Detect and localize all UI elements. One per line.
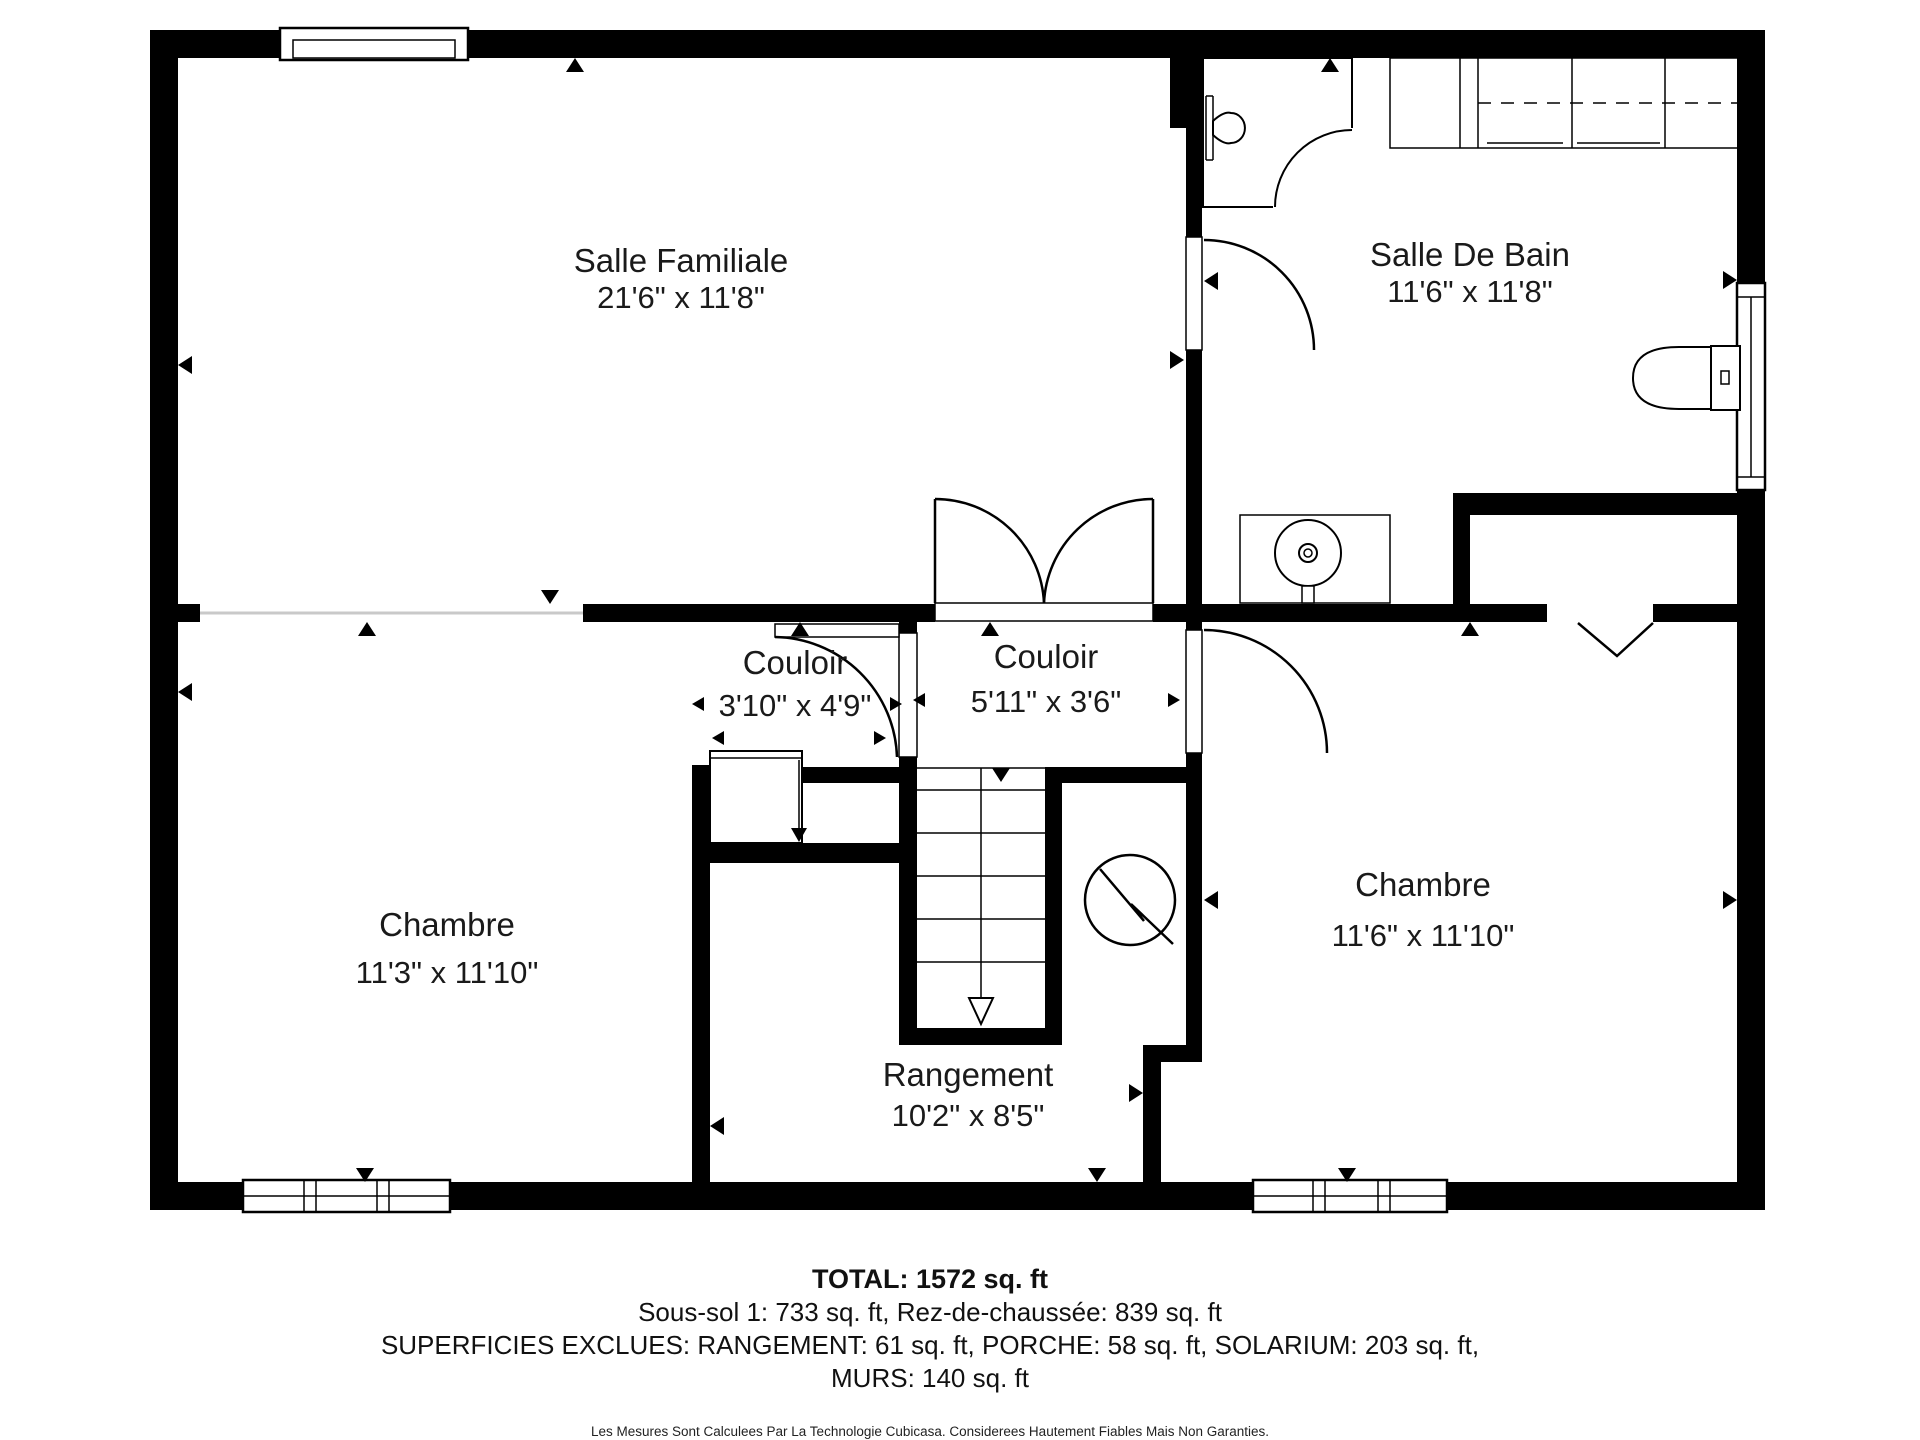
water-heater-icon	[1085, 855, 1175, 945]
opening-marker-icon	[178, 356, 192, 374]
wall	[1737, 30, 1765, 283]
utility-sink-icon	[1240, 515, 1390, 603]
wall	[150, 1182, 243, 1210]
total-area-text: TOTAL: 1572 sq. ft	[0, 1263, 1890, 1296]
opening-marker-icon	[1723, 891, 1737, 909]
excluded-areas-text: SUPERFICIES EXCLUES: RANGEMENT: 61 sq. f…	[0, 1329, 1890, 1362]
wall	[1186, 128, 1202, 237]
wall	[178, 604, 200, 622]
wall	[899, 767, 917, 1045]
opening-marker-icon	[1321, 58, 1339, 72]
wall	[468, 30, 1765, 58]
room-label-salle-de-bain: Salle De Bain	[1370, 236, 1570, 273]
area-summary: TOTAL: 1572 sq. ft Sous-sol 1: 733 sq. f…	[0, 1263, 1890, 1395]
window-icon	[243, 1180, 450, 1212]
wall	[150, 30, 178, 1210]
toilet-icon	[1633, 346, 1740, 410]
window-icon	[1737, 283, 1765, 490]
wall	[1453, 493, 1765, 515]
room-label-couloir-petit: Couloir	[743, 644, 848, 681]
room-label-salle-familiale: Salle Familiale	[574, 242, 789, 279]
opening-marker-icon	[358, 622, 376, 636]
wall	[1470, 604, 1547, 622]
room-labels: Salle Familiale 21'6" x 11'8" Salle De B…	[356, 236, 1570, 1133]
wall	[899, 622, 917, 633]
wall	[1170, 58, 1202, 128]
doors	[775, 237, 1327, 757]
opening-marker-icon	[1168, 693, 1180, 707]
room-dims-salle-de-bain: 11'6" x 11'8"	[1387, 274, 1552, 309]
wall	[802, 767, 899, 783]
opening-marker-icon	[566, 58, 584, 72]
wall	[1045, 767, 1062, 1045]
bathroom-fixtures	[1203, 58, 1742, 603]
wall	[583, 604, 935, 622]
room-dims-chambre-gauche: 11'3" x 11'10"	[356, 955, 539, 990]
wall	[1186, 753, 1202, 1045]
stairs-down-arrow-icon	[969, 998, 993, 1024]
wall	[692, 765, 710, 1182]
room-dims-chambre-droite: 11'6" x 11'10"	[1332, 918, 1515, 953]
opening-marker-icon	[1129, 1084, 1143, 1102]
opening-marker-icon	[712, 731, 724, 745]
opening-marker-icon	[992, 768, 1010, 782]
arch-opening-icon	[1578, 623, 1653, 656]
room-dims-couloir-petit: 3'10" x 4'9"	[719, 688, 872, 723]
wall	[450, 1182, 1253, 1210]
room-label-couloir-grand: Couloir	[994, 638, 1099, 675]
opening-marker-icon	[1170, 351, 1184, 369]
opening-marker-icon	[178, 683, 192, 701]
wall	[1447, 1182, 1765, 1210]
window-icon	[280, 28, 468, 60]
opening-marker-icon	[981, 622, 999, 636]
wall	[899, 757, 917, 767]
room-label-rangement: Rangement	[883, 1056, 1054, 1093]
window-icon	[1253, 1180, 1447, 1212]
door-icon	[1186, 237, 1314, 350]
wall	[1653, 604, 1737, 622]
wall	[1737, 490, 1765, 1210]
opening-marker-icon	[710, 1117, 724, 1135]
wall	[899, 1028, 1062, 1045]
wall	[1186, 350, 1202, 630]
opening-marker-icon	[541, 590, 559, 604]
closet-icon	[710, 751, 807, 843]
opening-marker-icon	[874, 731, 886, 745]
disclaimer-text: Les Mesures Sont Calculees Par La Techno…	[0, 1424, 1890, 1439]
opening-marker-icon	[1461, 622, 1479, 636]
room-dims-couloir-grand: 5'11" x 3'6"	[971, 684, 1121, 719]
counter-icon	[1390, 58, 1742, 148]
floor-areas-text: Sous-sol 1: 733 sq. ft, Rez-de-chaussée:…	[0, 1296, 1890, 1329]
room-dims-rangement: 10'2" x 8'5"	[892, 1098, 1045, 1133]
floor-plan-drawing: Salle Familiale 21'6" x 11'8" Salle De B…	[0, 0, 1920, 1440]
shower-head-icon	[1206, 96, 1245, 160]
double-door-icon	[935, 499, 1153, 621]
room-label-chambre-droite: Chambre	[1355, 866, 1491, 903]
door-icon	[1186, 630, 1327, 753]
opening-marker-icon	[1088, 1168, 1106, 1182]
opening-marker-icon	[1723, 271, 1737, 289]
room-label-chambre-gauche: Chambre	[379, 906, 515, 943]
floor-plan-page: Salle Familiale 21'6" x 11'8" Salle De B…	[0, 0, 1920, 1440]
room-dims-salle-familiale: 21'6" x 11'8"	[597, 280, 765, 315]
wall	[692, 843, 910, 863]
opening-marker-icon	[692, 697, 704, 711]
opening-marker-icon	[1204, 272, 1218, 290]
excluded-areas-text-2: MURS: 140 sq. ft	[0, 1362, 1890, 1395]
stairs-icon	[917, 768, 1045, 1024]
wall	[1143, 1045, 1161, 1182]
wall	[1062, 767, 1186, 783]
opening-marker-icon	[1204, 891, 1218, 909]
